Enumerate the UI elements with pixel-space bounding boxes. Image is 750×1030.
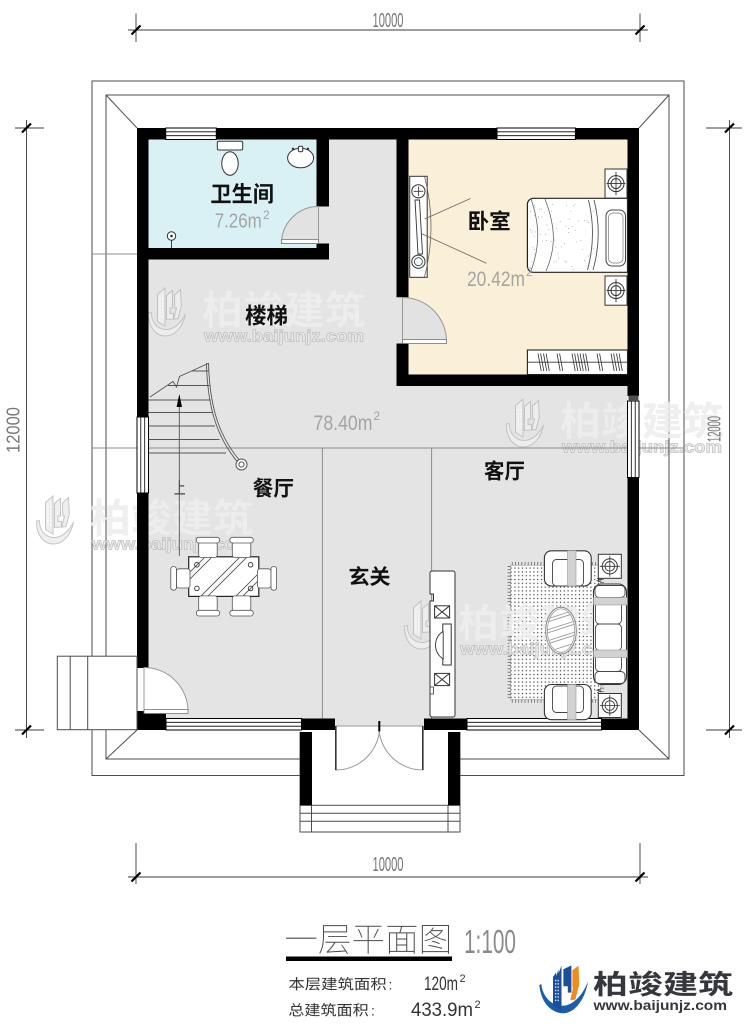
svg-text::: : [389,977,393,993]
svg-text:10000: 10000 [373,854,404,876]
svg-text::: : [371,1003,375,1019]
svg-text:2: 2 [460,973,466,985]
svg-text:www.baijunjz.com: www.baijunjz.com [203,328,364,346]
svg-text:1:100: 1:100 [464,923,516,960]
svg-text:12000: 12000 [3,407,24,453]
svg-text:2: 2 [526,265,533,279]
svg-text:12000: 12000 [704,416,725,442]
svg-text:20.42m: 20.42m [467,268,525,291]
svg-text:10000: 10000 [373,10,404,32]
svg-text:433.9m: 433.9m [411,1000,473,1021]
svg-text:78.40m: 78.40m [314,411,373,435]
svg-text:2: 2 [475,999,481,1011]
svg-text:www.baijunjz.com: www.baijunjz.com [592,998,727,1013]
svg-text:2: 2 [374,409,381,423]
svg-text:120m: 120m [424,974,458,995]
svg-text:7.26m: 7.26m [215,211,262,233]
svg-text:www.baijunjz.com: www.baijunjz.com [91,536,252,554]
svg-text:2: 2 [263,208,270,222]
